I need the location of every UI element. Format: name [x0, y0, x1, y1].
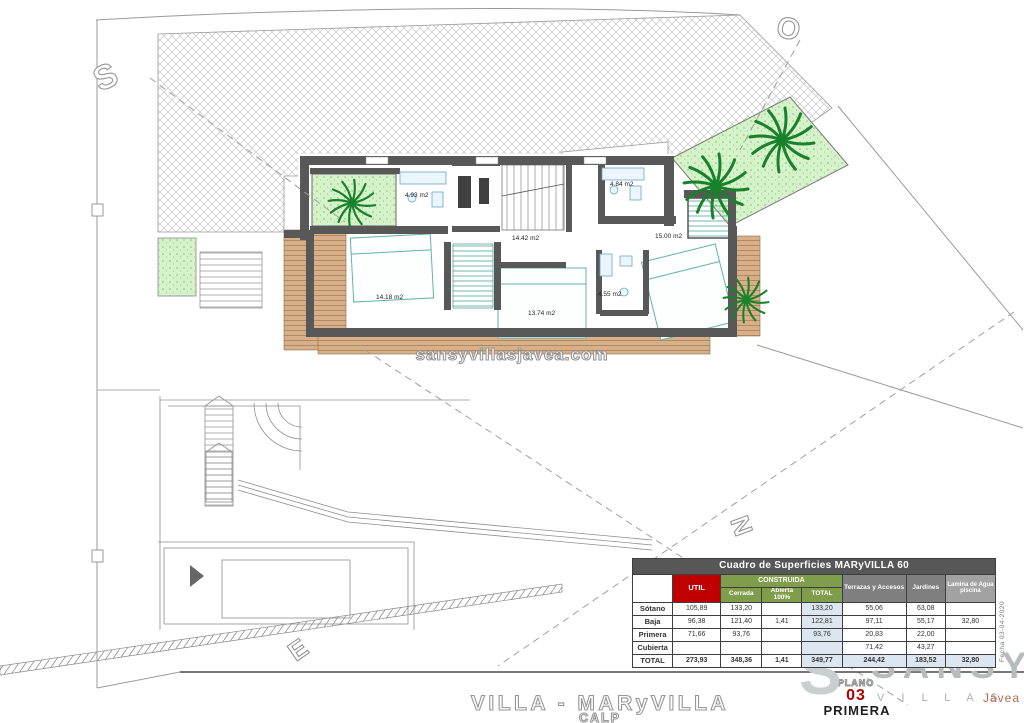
neighbor-plan-lines: [97, 390, 652, 630]
value-cell: 97,11: [842, 615, 906, 628]
room-label-landing: 14.42 m2: [512, 235, 539, 242]
column-header-jardines: Jardines: [906, 575, 945, 603]
planter-strip-west: [158, 238, 196, 296]
column-header-total: TOTAL: [802, 588, 842, 603]
value-cell: [762, 628, 802, 641]
value-cell: 105,89: [673, 602, 721, 615]
surface-table: Cuadro de Superficies MARyVILLA 60 UTIL …: [632, 558, 996, 668]
value-cell: 349,77: [802, 654, 842, 667]
value-cell: 32,80: [945, 615, 995, 628]
floor-plan-sheet: S O E N sansyvillasjavea.com VILLA - MAR…: [0, 0, 1024, 723]
value-cell: 55,06: [842, 602, 906, 615]
column-header-lamina: Lamina de Agua piscina: [945, 575, 995, 603]
value-cell: [762, 602, 802, 615]
room-label-bath-left: 4.93 m2: [405, 192, 429, 199]
row-label: Sótano: [633, 602, 673, 615]
column-group-construida: CONSTRUIDA: [721, 575, 842, 588]
value-cell: 122,81: [802, 615, 842, 628]
value-cell: [945, 628, 995, 641]
value-cell: 96,38: [673, 615, 721, 628]
row-label: Baja: [633, 615, 673, 628]
table-row: Baja96,38121,401,41122,8197,1155,1732,80: [633, 615, 996, 628]
row-label: Primera: [633, 628, 673, 641]
value-cell: [945, 641, 995, 654]
column-header-abierta: Abierta 100%: [762, 588, 802, 603]
compass-letter-e: E: [282, 632, 313, 667]
value-cell: 1,41: [762, 654, 802, 667]
room-label-bath-top-right: 4.84 m2: [610, 181, 634, 188]
road-strip: [0, 584, 562, 675]
room-label-bedroom-mid: 13.74 m2: [528, 310, 555, 317]
table-row: TOTAL273,93348,361,41349,77244,42183,523…: [633, 654, 996, 667]
table-title: Cuadro de Superficies MARyVILLA 60: [633, 559, 996, 575]
value-cell: 32,80: [945, 654, 995, 667]
date-note: Fecha 03-04-2020: [999, 584, 1006, 662]
logo-city: Jávea: [983, 691, 1020, 705]
table-row: Sótano105,89133,20133,2055,0663,08: [633, 602, 996, 615]
value-cell: [802, 641, 842, 654]
value-cell: 1,41: [762, 615, 802, 628]
value-cell: [673, 641, 721, 654]
value-cell: 71,66: [673, 628, 721, 641]
value-cell: 20,83: [842, 628, 906, 641]
value-cell: 93,76: [802, 628, 842, 641]
room-label-bath-mid: 4.55 m2: [598, 291, 622, 298]
row-label: Cubierta: [633, 641, 673, 654]
column-header-util: UTIL: [673, 575, 721, 603]
watermark: sansyvillasjavea.com: [416, 345, 609, 364]
value-cell: [762, 641, 802, 654]
room-label-bedroom-right: 15.00 m2: [655, 233, 682, 240]
table-row: Cubierta71,4243,27: [633, 641, 996, 654]
table-row: Primera71,6693,7693,7620,8322,00: [633, 628, 996, 641]
compass-letter-n: N: [724, 512, 759, 540]
value-cell: 244,42: [842, 654, 906, 667]
compass-letter-s: S: [87, 55, 124, 99]
surface-table-body: Sótano105,89133,20133,2055,0663,08Baja96…: [633, 602, 996, 667]
value-cell: 71,42: [842, 641, 906, 654]
room-label-bedroom-left: 14.18 m2: [376, 294, 403, 301]
value-cell: 121,40: [721, 615, 762, 628]
value-cell: 133,20: [721, 602, 762, 615]
column-header-terrazas: Terrazas y Accesos: [842, 575, 906, 603]
value-cell: 348,36: [721, 654, 762, 667]
value-cell: 273,93: [673, 654, 721, 667]
value-cell: 43,27: [906, 641, 945, 654]
column-header-cerrada: Cerrada: [721, 588, 762, 603]
row-label: TOTAL: [633, 654, 673, 667]
plano-name: PRIMERA: [815, 703, 899, 718]
value-cell: 93,76: [721, 628, 762, 641]
value-cell: 22,00: [906, 628, 945, 641]
value-cell: [721, 641, 762, 654]
sheet-subtitle: CALP: [579, 711, 621, 723]
column-header-blank: [633, 575, 673, 603]
value-cell: 55,17: [906, 615, 945, 628]
value-cell: 63,08: [906, 602, 945, 615]
value-cell: 183,52: [906, 654, 945, 667]
value-cell: [945, 602, 995, 615]
value-cell: 133,20: [802, 602, 842, 615]
